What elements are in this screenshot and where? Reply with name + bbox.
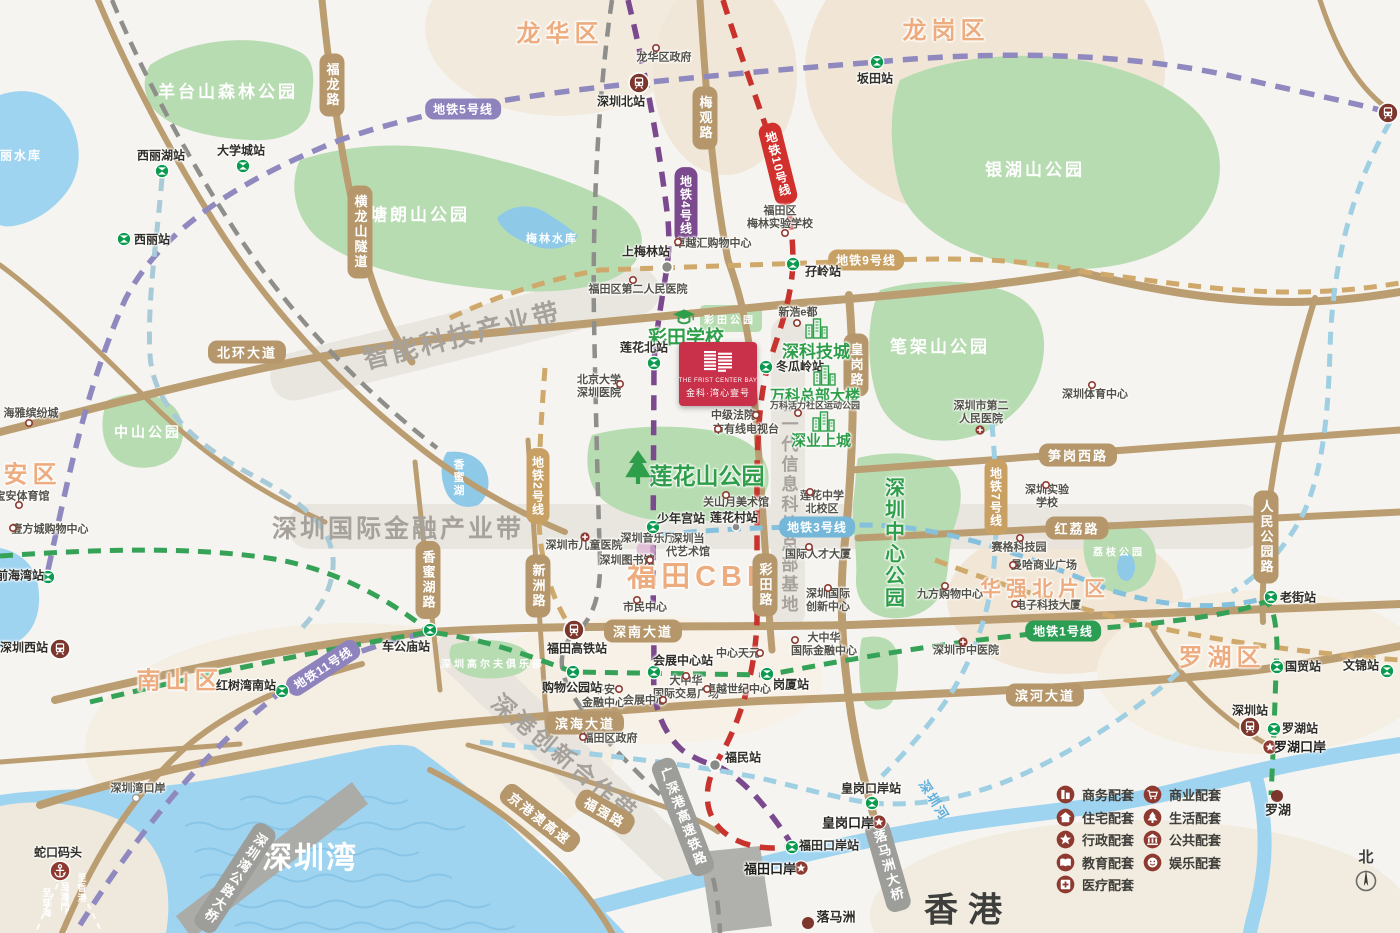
metro-station-label: 国贸站	[1285, 658, 1321, 675]
poi-dot-ring	[791, 636, 800, 645]
train-station-icon	[628, 72, 650, 94]
legend-item-label: 商务配套	[1082, 785, 1134, 804]
legend-item: 医疗配套	[1056, 875, 1134, 894]
poi-label: 市有线电视台	[713, 424, 779, 437]
ferry-port-label: 蛇口码头	[34, 844, 82, 861]
metro-station-icon	[117, 232, 132, 247]
green-poi-label: 深圳中心公园	[879, 477, 908, 609]
road-badge: 滨河大道	[1006, 684, 1084, 707]
map-canvas: THE FRIST CENTER BAY 金科·湾心壹号 香港 北 商务配套住宅…	[0, 0, 1400, 933]
metro-station-icon	[647, 356, 662, 371]
poi-dot-ring	[616, 380, 625, 389]
legend-item-label: 商业配套	[1169, 785, 1221, 804]
compass-needle-icon	[1353, 867, 1379, 893]
legend-book-icon	[1056, 853, 1075, 872]
gray-station-icon	[660, 260, 674, 274]
park-label: 荔枝公园	[1093, 544, 1145, 559]
metro-station-icon	[865, 796, 880, 811]
poi-dot-ring	[714, 425, 723, 434]
poi-label: 深圳市第二人民医院	[954, 400, 1009, 426]
poi-label: 曼哈商业广场	[1011, 560, 1077, 573]
industry-band-label: 深圳国际金融产业带	[272, 509, 524, 545]
hongkong-label: 香港	[924, 883, 1012, 932]
gray-station-label: 福民站	[725, 749, 761, 766]
metro-line-badge: 地铁3号线	[779, 517, 855, 538]
metro-station-label: 购物公园站	[542, 679, 602, 696]
district-label: 龙岗区	[903, 11, 990, 46]
district-label: 宝安区	[0, 455, 62, 490]
poi-dot-ring	[15, 501, 24, 510]
poi-label: 福田区第二人民医院	[589, 284, 688, 297]
road-badge: 梅观路	[693, 87, 718, 150]
metro-station-label: 福田口岸站	[799, 837, 859, 854]
gray-station-icon	[708, 758, 722, 772]
legend-item-label: 娱乐配套	[1169, 853, 1221, 872]
legend-item: 商务配套	[1056, 785, 1134, 804]
road-badge: 横龙山隧道	[348, 186, 373, 279]
metro-station-label: 车公庙站	[382, 638, 430, 655]
train-station-label: 深圳北站	[597, 93, 645, 110]
checkpoint-label: 皇岗口岸	[822, 813, 874, 832]
legend-hospital-icon	[1056, 875, 1075, 894]
metro-station-icon	[236, 159, 251, 174]
poi-label: 大中华国际金融中心	[791, 632, 857, 658]
legend-public-icon	[1143, 830, 1162, 849]
place-dot-label: 落马洲	[816, 907, 855, 926]
poi-label: 宝安体育馆	[0, 491, 50, 504]
place-dot	[802, 917, 815, 930]
legend-item: 住宅配套	[1056, 808, 1134, 827]
train-station-label: 深圳西站	[0, 639, 48, 656]
ferry-destination-label: 至澳門	[59, 882, 72, 912]
metro-line-badge: 地铁4号线	[675, 167, 698, 243]
water-label: 深圳湾	[262, 833, 358, 877]
poi-dot-ring	[1016, 534, 1025, 543]
legend-tree-icon	[1143, 808, 1162, 827]
metro-station-icon	[785, 840, 800, 855]
road-badge: 红荔路	[1045, 517, 1108, 540]
ferry-destination-label: 至珠海	[41, 888, 54, 918]
legend-item-label: 公共配套	[1169, 830, 1221, 849]
place-dot-label: 罗湖	[1265, 800, 1291, 819]
legend-item-label: 住宅配套	[1082, 808, 1134, 827]
metro-station-icon	[870, 55, 885, 70]
poi-label: 龙华区政府	[637, 52, 692, 65]
poi-label: 中级法院	[711, 410, 755, 423]
road-badge: 彩田路	[753, 554, 778, 617]
legend-item: 商业配套	[1143, 785, 1221, 804]
metro-station-icon	[275, 684, 290, 699]
road-badge: 北环大道	[208, 341, 286, 364]
poi-dot-ring	[633, 596, 642, 605]
poi-dot-ring	[805, 543, 814, 552]
park-label: 中山公园	[114, 422, 182, 442]
metro-station-label: 前海湾站	[0, 567, 44, 584]
poi-dot-ring	[752, 411, 761, 420]
metro-station-label: 孖岭站	[805, 263, 841, 280]
metro-station-icon	[759, 360, 774, 375]
compass-north-label: 北	[1353, 846, 1379, 867]
metro-station-label: 莲花北站	[620, 339, 668, 356]
green-poi-buildings-icon	[810, 409, 836, 433]
park-label: 深圳高尔夫俱乐部	[441, 656, 545, 671]
district-label: 罗湖区	[1179, 638, 1266, 673]
park-label: 塘朗山公园	[370, 201, 470, 226]
metro-line-west-blue	[149, 178, 333, 632]
poi-label: 卓越世纪中心	[705, 684, 771, 697]
poi-dot-ring	[615, 685, 624, 694]
road-badge: 笋岗西路	[1039, 444, 1117, 467]
project-logo-icon	[701, 350, 735, 376]
train-station-icon	[1377, 102, 1399, 124]
poi-label: 赛格科技园	[992, 542, 1047, 555]
legend-item-label: 行政配套	[1082, 830, 1134, 849]
metro-station-label: 岗厦站	[773, 676, 809, 693]
poi-dot-ring	[25, 419, 34, 428]
green-poi-tree-icon	[623, 449, 653, 489]
poi-label: 深圳体育中心	[1062, 389, 1128, 402]
metro-line-badge: 地铁1号线	[1025, 621, 1101, 642]
metro-station-icon	[155, 164, 170, 179]
poi-dot-white	[132, 794, 141, 803]
train-station-label: 深圳站	[1232, 702, 1268, 719]
compass: 北	[1353, 846, 1379, 898]
poi-dot-ring	[824, 584, 833, 593]
metro-station-icon	[423, 623, 438, 638]
green-poi-buildings-icon	[803, 316, 829, 340]
poi-dot-ring	[682, 672, 691, 681]
park-label: 笔架山公园	[890, 333, 990, 358]
legend-item: 公共配套	[1143, 830, 1221, 849]
green-poi-school-icon	[672, 307, 696, 327]
poi-dot-ring	[1042, 481, 1051, 490]
road-badge: 新洲路	[526, 555, 551, 618]
train-station-icon	[1239, 716, 1261, 738]
road-badge: 深南大道	[604, 620, 682, 643]
park-label: 羊台山森林公园	[158, 78, 298, 103]
gray-station-label: 上梅林站	[622, 243, 670, 260]
district-label: 龙华区	[517, 14, 604, 49]
poi-dot-ring	[941, 582, 950, 591]
train-station-label: 福田高铁站	[547, 640, 607, 657]
poi-dot-med	[580, 532, 590, 542]
legend-item: 行政配套	[1056, 830, 1134, 849]
ferry-port-anchor-icon	[50, 861, 71, 882]
legend-house-icon	[1056, 808, 1075, 827]
poi-dot-ring	[722, 491, 731, 500]
metro-station-label: 会展中心站	[653, 652, 713, 669]
metro-station-icon	[1264, 590, 1279, 605]
green-poi-buildings-icon	[811, 363, 837, 387]
metro-station-label: 坂田站	[857, 70, 893, 87]
checkpoint-label: 罗湖口岸	[1274, 737, 1326, 756]
poi-dot-ring	[646, 556, 655, 565]
poi-dot-ring	[579, 733, 588, 742]
poi-label: 九方购物中心	[917, 589, 983, 602]
metro-station-icon	[1267, 722, 1282, 737]
metro-line-badge: 地铁5号线	[425, 99, 501, 120]
poi-dot-ring	[806, 488, 815, 497]
poi-label: 市民中心	[623, 602, 667, 615]
poi-label: 福田区政府	[583, 733, 638, 746]
poi-label: 北京大学深圳医院	[577, 374, 621, 400]
road-badge: 人民公园路	[1254, 491, 1279, 584]
legend-item: 生活配套	[1143, 808, 1221, 827]
metro-line-badge: 地铁7号线	[985, 459, 1008, 535]
legend-item: 教育配套	[1056, 853, 1134, 872]
poi-dot-ring	[1009, 561, 1018, 570]
poi-dot-ring	[793, 319, 802, 328]
poi-dot-ring	[674, 238, 683, 247]
train-station-icon	[49, 638, 71, 660]
park-label: 银湖山公园	[985, 156, 1085, 181]
metro-station-label: 少年宫站	[657, 510, 705, 527]
legend-item-label: 医疗配套	[1082, 875, 1134, 894]
poi-label: 国际人才大厦	[785, 549, 851, 562]
legend-item: 娱乐配套	[1143, 853, 1221, 872]
metro-station-label: 文锦站	[1343, 657, 1379, 674]
metro-station-icon	[786, 257, 801, 272]
legend-cart-icon	[1143, 785, 1162, 804]
water-label: 西丽水库	[0, 147, 42, 164]
poi-dot-med	[975, 425, 985, 435]
poi-dot-ring	[9, 524, 18, 533]
poi-dot-med	[958, 637, 968, 647]
project-name-en: THE FRIST CENTER BAY	[679, 378, 757, 384]
poi-dot-ring	[794, 409, 803, 418]
metro-station-label: 西丽站	[134, 231, 170, 248]
poi-dot-ring	[1011, 600, 1020, 609]
metro-station-label: 红树湾南站	[216, 677, 276, 694]
poi-label: 卓越汇购物中心	[675, 238, 752, 251]
legend-star-icon	[1056, 830, 1075, 849]
metro-station-icon	[1270, 660, 1285, 675]
poi-dot-ring	[629, 276, 638, 285]
metro-station-icon	[566, 665, 581, 680]
legend-mask-icon	[1143, 853, 1162, 872]
project-marker: THE FRIST CENTER BAY 金科·湾心壹号	[679, 342, 757, 406]
industry-band-label: 新一代信息科技总部基地	[776, 395, 801, 615]
district-label: 南山区	[137, 661, 224, 696]
poi-label: 福田区梅林实验学校	[747, 205, 813, 231]
metro-station-label: 西丽湖站	[137, 147, 185, 164]
water-label: 梅林水库	[526, 230, 578, 246]
ferry-destination-label: 至香港	[76, 873, 89, 903]
road-badge: 福龙路	[320, 54, 345, 117]
metro-station-label: 罗湖站	[1282, 720, 1318, 737]
metro-line-badge: 地铁2号线	[527, 448, 550, 524]
road-badge: 香蜜湖路	[416, 541, 441, 619]
poi-dot-ring	[756, 649, 765, 658]
poi-dot-ring	[781, 229, 790, 238]
legend-office-icon	[1056, 785, 1075, 804]
metro-station-label: 大学城站	[217, 142, 265, 159]
poi-label: 中心天元	[716, 648, 760, 661]
train-station-icon	[563, 619, 585, 641]
poi-label: 电子科技大厦	[1015, 600, 1081, 613]
metro-station-icon	[1380, 664, 1395, 679]
poi-dot-ring	[659, 696, 668, 705]
poi-label: 深圳当代艺术馆	[666, 533, 710, 559]
metro-station-label: 皇岗口岸站	[841, 780, 901, 797]
poi-dot-ring	[1088, 381, 1097, 390]
district-label: 华强北片区	[980, 573, 1110, 603]
legend-item-label: 生活配套	[1169, 808, 1221, 827]
road-badge: 滨海大道	[546, 712, 624, 735]
water-label: 香蜜湖	[450, 459, 466, 498]
poi-dot-ring	[703, 685, 712, 694]
legend-item-label: 教育配套	[1082, 853, 1134, 872]
gray-station-label: 莲花村站	[710, 509, 758, 526]
project-name-zh: 金科·湾心壹号	[686, 386, 750, 399]
metro-station-label: 老街站	[1280, 589, 1316, 606]
checkpoint-label: 福田口岸	[744, 859, 796, 878]
poi-label: 壹方城购物中心	[12, 524, 89, 537]
poi-dot-ring	[652, 44, 661, 53]
green-poi-label: 莲花山公园	[650, 457, 765, 491]
